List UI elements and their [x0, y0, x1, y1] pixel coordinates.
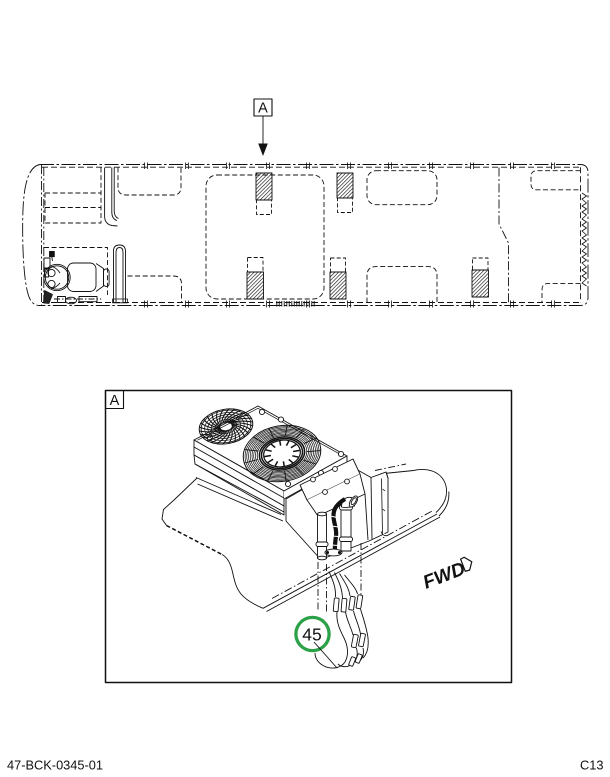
svg-text:C13: C13 — [580, 758, 603, 773]
svg-text:A: A — [110, 393, 120, 409]
svg-text:45: 45 — [302, 625, 321, 645]
svg-text:47-BCK-0345-01: 47-BCK-0345-01 — [7, 758, 103, 773]
svg-text:A: A — [258, 101, 268, 117]
